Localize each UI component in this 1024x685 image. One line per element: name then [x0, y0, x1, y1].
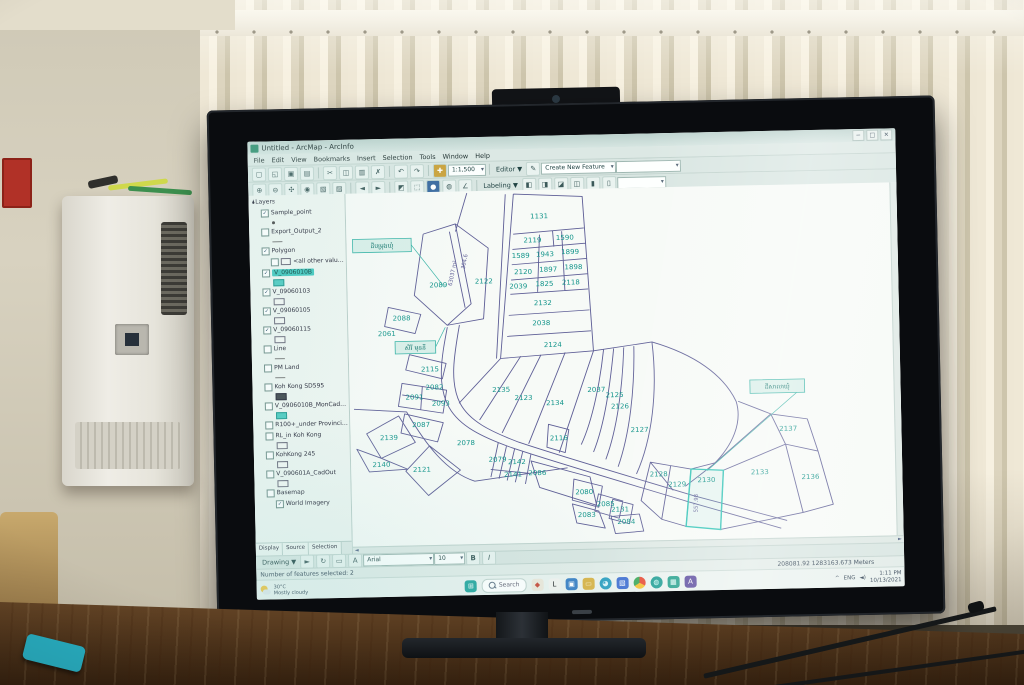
layer-checkbox[interactable]: ✓: [261, 209, 269, 217]
parcel-label-2088: 2088: [393, 314, 411, 322]
copy-icon[interactable]: ◫: [339, 165, 353, 179]
toc-tab-selection[interactable]: Selection: [309, 542, 342, 555]
separator: [389, 166, 390, 177]
layer-name: V_0906010B_MonCadOut: [275, 401, 349, 410]
camera-lens: [552, 95, 560, 103]
close-button[interactable]: ✕: [880, 129, 892, 140]
legend-swatch-icon: [276, 412, 287, 419]
layer-name: Line: [274, 345, 287, 352]
parcel-label-2084: 2084: [617, 518, 635, 526]
parcel-label-2079: 2079: [489, 456, 507, 464]
layer-name: Sample_point: [271, 209, 312, 217]
parcel-label-1943: 1943: [536, 250, 554, 258]
parcel-label-2128: 2128: [650, 470, 668, 478]
legend-swatch-icon: [274, 317, 285, 324]
parcel-label-2133: 2133: [751, 468, 769, 476]
menu-window[interactable]: Window: [442, 152, 468, 161]
sketch-tool-icon[interactable]: ✎: [526, 161, 540, 175]
layer-name: V_09060103: [272, 288, 310, 296]
layer-checkbox[interactable]: [266, 470, 274, 478]
parcel-label-2089: 2089: [429, 281, 447, 289]
menu-view[interactable]: View: [291, 155, 307, 163]
parcel-label-1897: 1897: [539, 266, 557, 274]
parcel-label-2123: 2123: [515, 394, 533, 402]
parcel-label-2137: 2137: [779, 425, 797, 433]
minimize-button[interactable]: ─: [852, 130, 864, 141]
green-app-icon[interactable]: ▦: [667, 575, 679, 587]
legend-swatch-icon: [274, 298, 285, 305]
new-map-icon[interactable]: ▢: [252, 167, 266, 181]
meeting-room-photo: Untitled - ArcMap - ArcInfo ─□✕ FileEdit…: [0, 0, 1024, 685]
layer-name: Koh Kong SD595: [274, 382, 324, 390]
save-icon[interactable]: ▣: [284, 166, 298, 180]
menu-file[interactable]: File: [254, 156, 265, 164]
parcel-label-2086: 2086: [528, 469, 546, 477]
arcgis-globe-icon[interactable]: ◍: [650, 576, 662, 588]
legend-swatch-icon: [277, 480, 288, 487]
acrobat-icon[interactable]: A: [684, 575, 696, 587]
dimension-text: 63037 m²: [447, 260, 459, 286]
separator: [318, 167, 319, 178]
parcel-label-2037: 2037: [587, 386, 605, 394]
scale-combo[interactable]: 1:1,500: [448, 163, 486, 176]
delete-icon[interactable]: ✗: [371, 164, 385, 178]
parcel-label-2119: 2119: [523, 236, 541, 244]
tv-stand-base: [402, 638, 646, 658]
layer-checkbox[interactable]: [264, 364, 272, 372]
layer-checkbox[interactable]: [266, 451, 274, 459]
parcel-label-2131: 2131: [611, 506, 629, 514]
layer-name: Layers: [255, 198, 275, 205]
font-size-combo[interactable]: 10: [434, 552, 465, 565]
parcel-label-2126: 2126: [611, 402, 629, 410]
legend-swatch-icon: [272, 241, 282, 242]
layer-name: Export_Output_2: [271, 227, 321, 235]
fire-alarm-box: [2, 158, 32, 208]
tv-display: Untitled - ArcMap - ArcInfo ─□✕ FileEdit…: [207, 95, 946, 628]
layer-item[interactable]: ✓World Imagery: [255, 497, 351, 510]
layer-name: Polygon: [272, 247, 296, 254]
menu-insert[interactable]: Insert: [357, 154, 376, 162]
layer-checkbox[interactable]: ✓: [263, 307, 271, 315]
legend-swatch-icon: [277, 461, 288, 468]
clock[interactable]: 1:11 PM 10/13/2021: [870, 570, 902, 585]
layers-tree: 🌢Layers✓Sample_pointExport_Output_2✓Poly…: [248, 195, 351, 544]
layer-checkbox[interactable]: ✓: [263, 326, 271, 334]
separator: [350, 183, 351, 194]
layer-checkbox[interactable]: [271, 258, 279, 266]
menu-edit[interactable]: Edit: [272, 156, 285, 164]
tray-date: 10/13/2021: [870, 577, 902, 584]
legend-swatch-icon: [272, 221, 275, 224]
parcel-label-1131: 1131: [530, 212, 548, 220]
language-indicator[interactable]: ENG: [844, 575, 856, 581]
parcel-boundaries: [350, 186, 834, 539]
parcel-label-2124: 2124: [544, 341, 562, 349]
layer-checkbox[interactable]: ✓: [262, 269, 270, 277]
parcel-label-2116: 2116: [550, 434, 568, 442]
edit-task-combo[interactable]: Create New Feature: [541, 161, 616, 175]
toc-tab-display[interactable]: Display: [256, 543, 284, 556]
search-placeholder: Search: [499, 581, 520, 588]
cadastral-map[interactable]: ដីបម្រុងឃុំសិរី មុននីដីសាលាឃុំ 113121191…: [345, 182, 898, 546]
layer-checkbox[interactable]: ✓: [262, 288, 270, 296]
undo-icon[interactable]: ↶: [394, 164, 408, 178]
parcel-label-2134: 2134: [546, 399, 564, 407]
arcmap-app-icon: [250, 144, 258, 152]
maximize-button[interactable]: □: [866, 130, 878, 141]
parcel-label-1589: 1589: [512, 252, 530, 260]
layer-name: V_0906010B: [272, 268, 314, 276]
ac-control-panel: [115, 324, 149, 356]
layer-name: R100+_under Provincial Managem: [275, 420, 349, 429]
parcel-label-2129: 2129: [668, 480, 686, 488]
parcel-label-2142: 2142: [508, 458, 526, 466]
colorful-app-icon[interactable]: ◆: [531, 578, 543, 590]
parcel-label-2132: 2132: [534, 299, 552, 307]
legend-swatch-icon: [277, 442, 288, 449]
ac-display: [125, 333, 139, 346]
parcel-label-2061: 2061: [378, 330, 396, 338]
layer-checkbox[interactable]: [261, 228, 269, 236]
separator: [489, 164, 490, 175]
parcel-label-2078: 2078: [457, 439, 475, 447]
parcel-label-2083: 2083: [578, 511, 596, 519]
layer-name: V_09060105: [273, 307, 311, 315]
parcel-label-2139: 2139: [380, 434, 398, 442]
layer-checkbox[interactable]: [265, 421, 273, 429]
layer-name: <all other values>: [293, 257, 346, 265]
layer-name: V_090601A_CadOut: [276, 469, 336, 477]
air-conditioner: [62, 196, 194, 486]
tray-time: 1:11 PM: [879, 570, 901, 576]
layer-checkbox[interactable]: [267, 489, 275, 497]
parcel-label-2130: 2130: [697, 476, 715, 484]
edge-browser-icon[interactable]: ◕: [599, 577, 611, 589]
window-title: Untitled - ArcMap - ArcInfo: [261, 142, 354, 152]
parcel-label-2125: 2125: [606, 391, 624, 399]
labeling-menu[interactable]: Labeling ▼: [483, 181, 518, 190]
ac-vent-grille: [161, 222, 187, 315]
parcel-label-2093: 2093: [432, 400, 450, 408]
layer-checkbox[interactable]: ✓: [276, 500, 284, 508]
redo-icon[interactable]: ↷: [410, 164, 424, 178]
window-controls: ─□✕: [852, 129, 892, 141]
menu-help[interactable]: Help: [475, 151, 490, 159]
layer-checkbox[interactable]: [265, 432, 273, 440]
layer-name: World Imagery: [286, 499, 330, 507]
parcel-label-2082: 2082: [425, 383, 443, 391]
tv-brand-logo: [572, 610, 592, 614]
parcel-label-2121: 2121: [413, 466, 431, 474]
l-app-icon[interactable]: L: [548, 578, 560, 590]
target-layer-combo[interactable]: [616, 159, 681, 172]
parcel-label-2136: 2136: [801, 473, 819, 481]
parcel-label-2118: 2118: [562, 278, 580, 286]
menu-tools[interactable]: Tools: [419, 152, 435, 160]
arcmap-window: Untitled - ArcMap - ArcInfo ─□✕ FileEdit…: [247, 128, 904, 580]
search-icon: [489, 582, 496, 589]
search-box[interactable]: Search: [482, 578, 527, 593]
legend-swatch-icon: [276, 393, 287, 400]
print-icon[interactable]: ▤: [300, 166, 314, 180]
parcel-label-2038: 2038: [532, 319, 550, 327]
parcel-label-1898: 1898: [564, 263, 582, 271]
separator: [476, 180, 477, 191]
parcel-label-2127: 2127: [631, 426, 649, 434]
map-callout: សិរី មុននី: [395, 327, 446, 354]
wall-top: [0, 0, 235, 30]
parcel-label-2087: 2087: [412, 421, 430, 429]
chrome-icon[interactable]: [633, 576, 645, 588]
drawing-menu[interactable]: Drawing ▼: [262, 558, 296, 567]
legend-swatch-icon: [274, 336, 285, 343]
editor-menu[interactable]: Editor ▼: [496, 165, 522, 174]
parcel-label-2080: 2080: [575, 488, 593, 496]
ac-intake-grille: [75, 422, 181, 468]
separator: [389, 182, 390, 193]
legend-swatch-icon: [281, 258, 292, 265]
parcel-label-2120: 2120: [514, 268, 532, 276]
photos-app-icon[interactable]: ▧: [616, 576, 628, 588]
dimension-text: 557.98: [694, 493, 700, 512]
paste-icon[interactable]: ▥: [355, 165, 369, 179]
parcel-label-1590: 1590: [556, 234, 574, 242]
open-icon[interactable]: ◱: [268, 167, 282, 181]
separator: [428, 165, 429, 176]
parcel-label-2122: 2122: [475, 277, 493, 285]
map-view[interactable]: ដីបម្រុងឃុំសិរី មុននីដីសាលាឃុំ 113121191…: [345, 182, 903, 553]
start-button[interactable]: ⊞: [465, 580, 477, 592]
parcel-number-labels: 1131211915901589194318992120189718982039…: [367, 207, 820, 531]
layer-name: V_09060115: [273, 326, 311, 334]
parcel-label-2141: 2141: [504, 471, 522, 479]
system-tray[interactable]: ^ ENG ◄) 1:11 PM 10/13/2021: [835, 568, 902, 586]
menu-bookmarks[interactable]: Bookmarks: [314, 154, 350, 163]
layer-checkbox[interactable]: [264, 345, 272, 353]
layer-name: RL_in Koh Kong: [275, 431, 321, 439]
table-of-contents-panel: 🌢Layers✓Sample_pointExport_Output_2✓Poly…: [248, 194, 353, 556]
parcel-label-2135: 2135: [492, 386, 510, 394]
layer-checkbox[interactable]: [265, 402, 273, 410]
layer-checkbox[interactable]: ✓: [262, 247, 270, 255]
toc-tab-source[interactable]: Source: [283, 543, 309, 556]
tray-chevron-icon[interactable]: ^: [835, 575, 840, 581]
parcel-label-2039: 2039: [509, 282, 527, 290]
parcel-label-2091: 2091: [405, 393, 423, 401]
cut-icon[interactable]: ✂: [323, 165, 337, 179]
application-body: 🌢Layers✓Sample_pointExport_Output_2✓Poly…: [248, 182, 903, 555]
microsoft-store-icon[interactable]: ▣: [565, 578, 577, 590]
menu-selection[interactable]: Selection: [382, 153, 412, 162]
layer-name: KohKong 245: [276, 450, 316, 458]
speaker-icon[interactable]: ◄): [859, 574, 866, 580]
parcel-label-2140: 2140: [372, 461, 390, 469]
layer-name: Basemap: [277, 489, 305, 497]
tv-screen: Untitled - ArcMap - ArcInfo ─□✕ FileEdit…: [247, 128, 904, 599]
add-data-icon[interactable]: ✚: [433, 163, 447, 177]
parcel-label-2115: 2115: [421, 365, 439, 373]
legend-swatch-icon: [275, 377, 285, 378]
file-explorer-icon[interactable]: ▭: [582, 577, 594, 589]
layer-checkbox[interactable]: [264, 383, 272, 391]
wooden-chair: [0, 512, 58, 616]
parcel-label-1825: 1825: [535, 280, 553, 288]
legend-swatch-icon: [275, 358, 285, 359]
parcel-label-1899: 1899: [561, 248, 579, 256]
legend-swatch-icon: [273, 279, 284, 286]
layer-name: PM Land: [274, 364, 299, 372]
